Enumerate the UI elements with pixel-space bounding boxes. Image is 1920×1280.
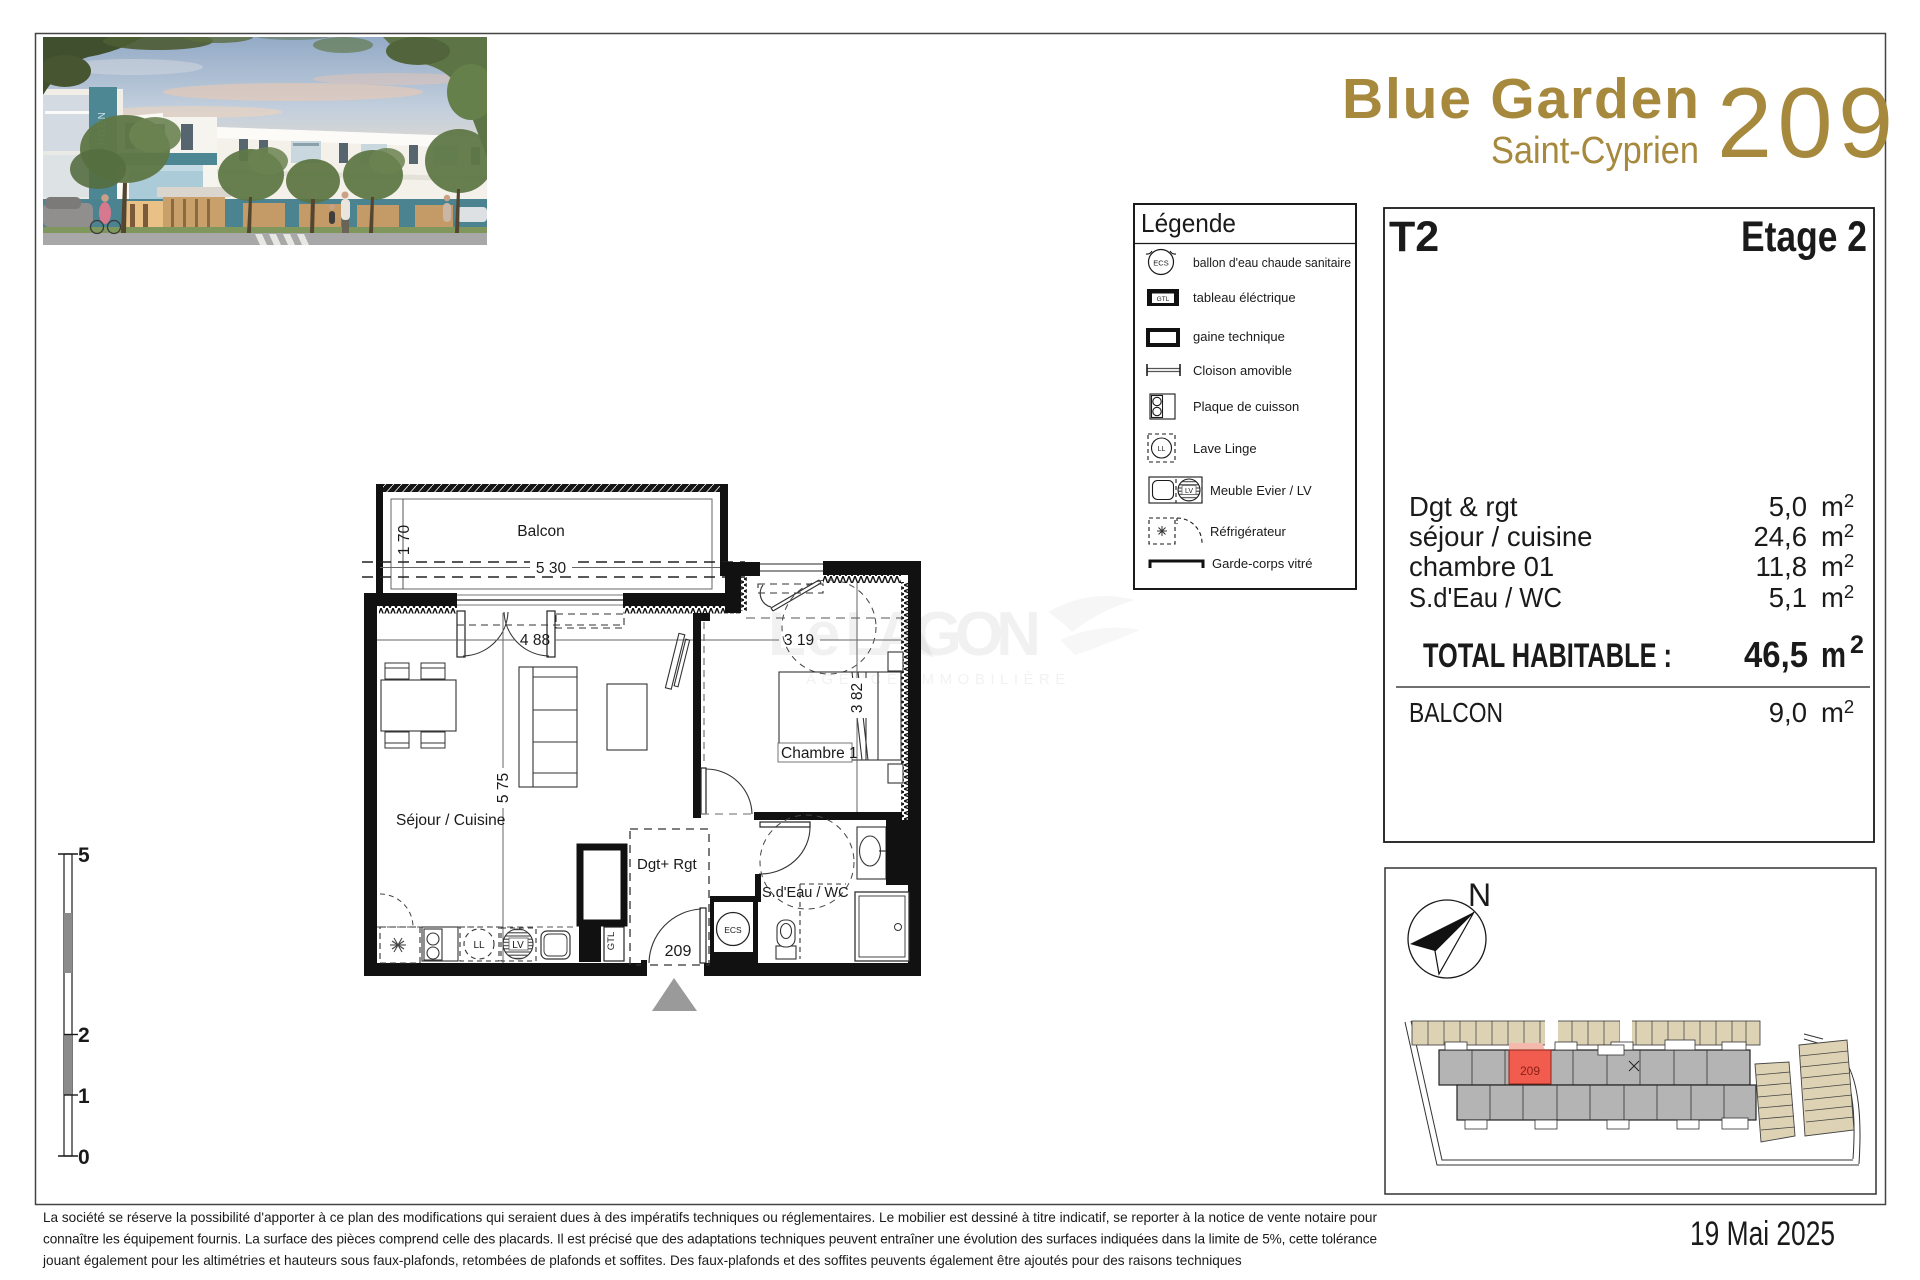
svg-text:La société se réserve la possi: La société se réserve la possibilité d'a… xyxy=(43,1210,1377,1225)
svg-text:19 Mai 2025: 19 Mai 2025 xyxy=(1690,1215,1835,1253)
svg-text:46,5: 46,5 xyxy=(1744,634,1808,675)
svg-text:Saint-Cyprien: Saint-Cyprien xyxy=(1491,130,1699,172)
svg-text:jouant également pour les alti: jouant également pour les altimétries et… xyxy=(42,1253,1242,1268)
svg-text:m: m xyxy=(1821,634,1846,675)
svg-text:Dgt+ Rgt: Dgt+ Rgt xyxy=(637,856,697,873)
svg-text:Garde-corps vitré: Garde-corps vitré xyxy=(1212,556,1312,571)
svg-text:AGENCE IMMOBILIÈRE: AGENCE IMMOBILIÈRE xyxy=(806,671,1071,688)
svg-text:N: N xyxy=(1468,877,1491,913)
svg-text:Réfrigérateur: Réfrigérateur xyxy=(1210,524,1287,539)
svg-text:BALCON: BALCON xyxy=(1409,697,1503,728)
svg-text:Plaque de cuisson: Plaque de cuisson xyxy=(1193,399,1299,414)
svg-text:Blue Garden: Blue Garden xyxy=(1342,67,1699,131)
svg-text:5,0: 5,0 xyxy=(1769,491,1807,522)
svg-text:TOTAL HABITABLE :: TOTAL HABITABLE : xyxy=(1423,637,1672,675)
svg-text:9,0: 9,0 xyxy=(1769,697,1807,728)
svg-text:Dgt & rgt: Dgt & rgt xyxy=(1409,491,1518,522)
svg-text:5: 5 xyxy=(78,844,90,867)
svg-text:209: 209 xyxy=(1717,67,1893,178)
svg-text:24,6: 24,6 xyxy=(1753,521,1807,552)
svg-text:Chambre 1: Chambre 1 xyxy=(781,745,858,762)
svg-text:GTL: GTL xyxy=(606,932,617,950)
svg-text:2: 2 xyxy=(78,1024,90,1047)
svg-text:gaine technique: gaine technique xyxy=(1193,329,1285,344)
svg-text:ballon d'eau chaude sanitaire: ballon d'eau chaude sanitaire xyxy=(1193,255,1351,270)
svg-text:5 30: 5 30 xyxy=(536,560,567,577)
svg-text:209: 209 xyxy=(1520,1064,1540,1078)
svg-text:1 70: 1 70 xyxy=(396,525,413,556)
svg-text:GTL: GTL xyxy=(1157,296,1170,303)
svg-text:LV: LV xyxy=(512,940,524,951)
svg-text:0: 0 xyxy=(78,1146,90,1169)
svg-text:LV: LV xyxy=(1185,488,1193,495)
svg-text:209: 209 xyxy=(665,943,692,960)
svg-text:5 75: 5 75 xyxy=(495,773,512,803)
svg-text:4 88: 4 88 xyxy=(520,632,550,649)
svg-text:Légende: Légende xyxy=(1141,208,1236,238)
svg-text:11,8: 11,8 xyxy=(1756,551,1807,582)
svg-text:ECS: ECS xyxy=(724,925,742,935)
svg-text:ECS: ECS xyxy=(1153,259,1168,268)
svg-text:2: 2 xyxy=(1850,631,1864,659)
svg-text:S.d'Eau / WC: S.d'Eau / WC xyxy=(1409,582,1562,613)
svg-text:Meuble Evier / LV: Meuble Evier / LV xyxy=(1210,483,1312,498)
svg-text:LL: LL xyxy=(473,940,485,951)
svg-text:tableau éléctrique: tableau éléctrique xyxy=(1193,290,1296,305)
svg-text:connaître les équipement fourn: connaître les équipement fournis. La sur… xyxy=(43,1232,1377,1247)
svg-text:Lave Linge: Lave Linge xyxy=(1193,441,1257,456)
svg-text:LL: LL xyxy=(1158,446,1166,453)
svg-text:3 19: 3 19 xyxy=(784,632,814,649)
svg-text:séjour / cuisine: séjour / cuisine xyxy=(1409,521,1592,552)
svg-text:3 82: 3 82 xyxy=(849,683,866,713)
svg-text:T2: T2 xyxy=(1389,213,1439,261)
svg-text:1: 1 xyxy=(78,1085,90,1108)
svg-text:S.d'Eau / WC: S.d'Eau / WC xyxy=(762,885,849,901)
svg-text:LAGON: LAGON xyxy=(845,600,1041,669)
svg-text:Etage 2: Etage 2 xyxy=(1741,213,1867,261)
svg-text:Balcon: Balcon xyxy=(517,523,564,540)
svg-text:Cloison amovible: Cloison amovible xyxy=(1193,363,1292,378)
svg-text:chambre 01: chambre 01 xyxy=(1409,551,1554,582)
svg-text:Séjour / Cuisine: Séjour / Cuisine xyxy=(396,812,505,829)
svg-text:5,1: 5,1 xyxy=(1769,582,1807,613)
